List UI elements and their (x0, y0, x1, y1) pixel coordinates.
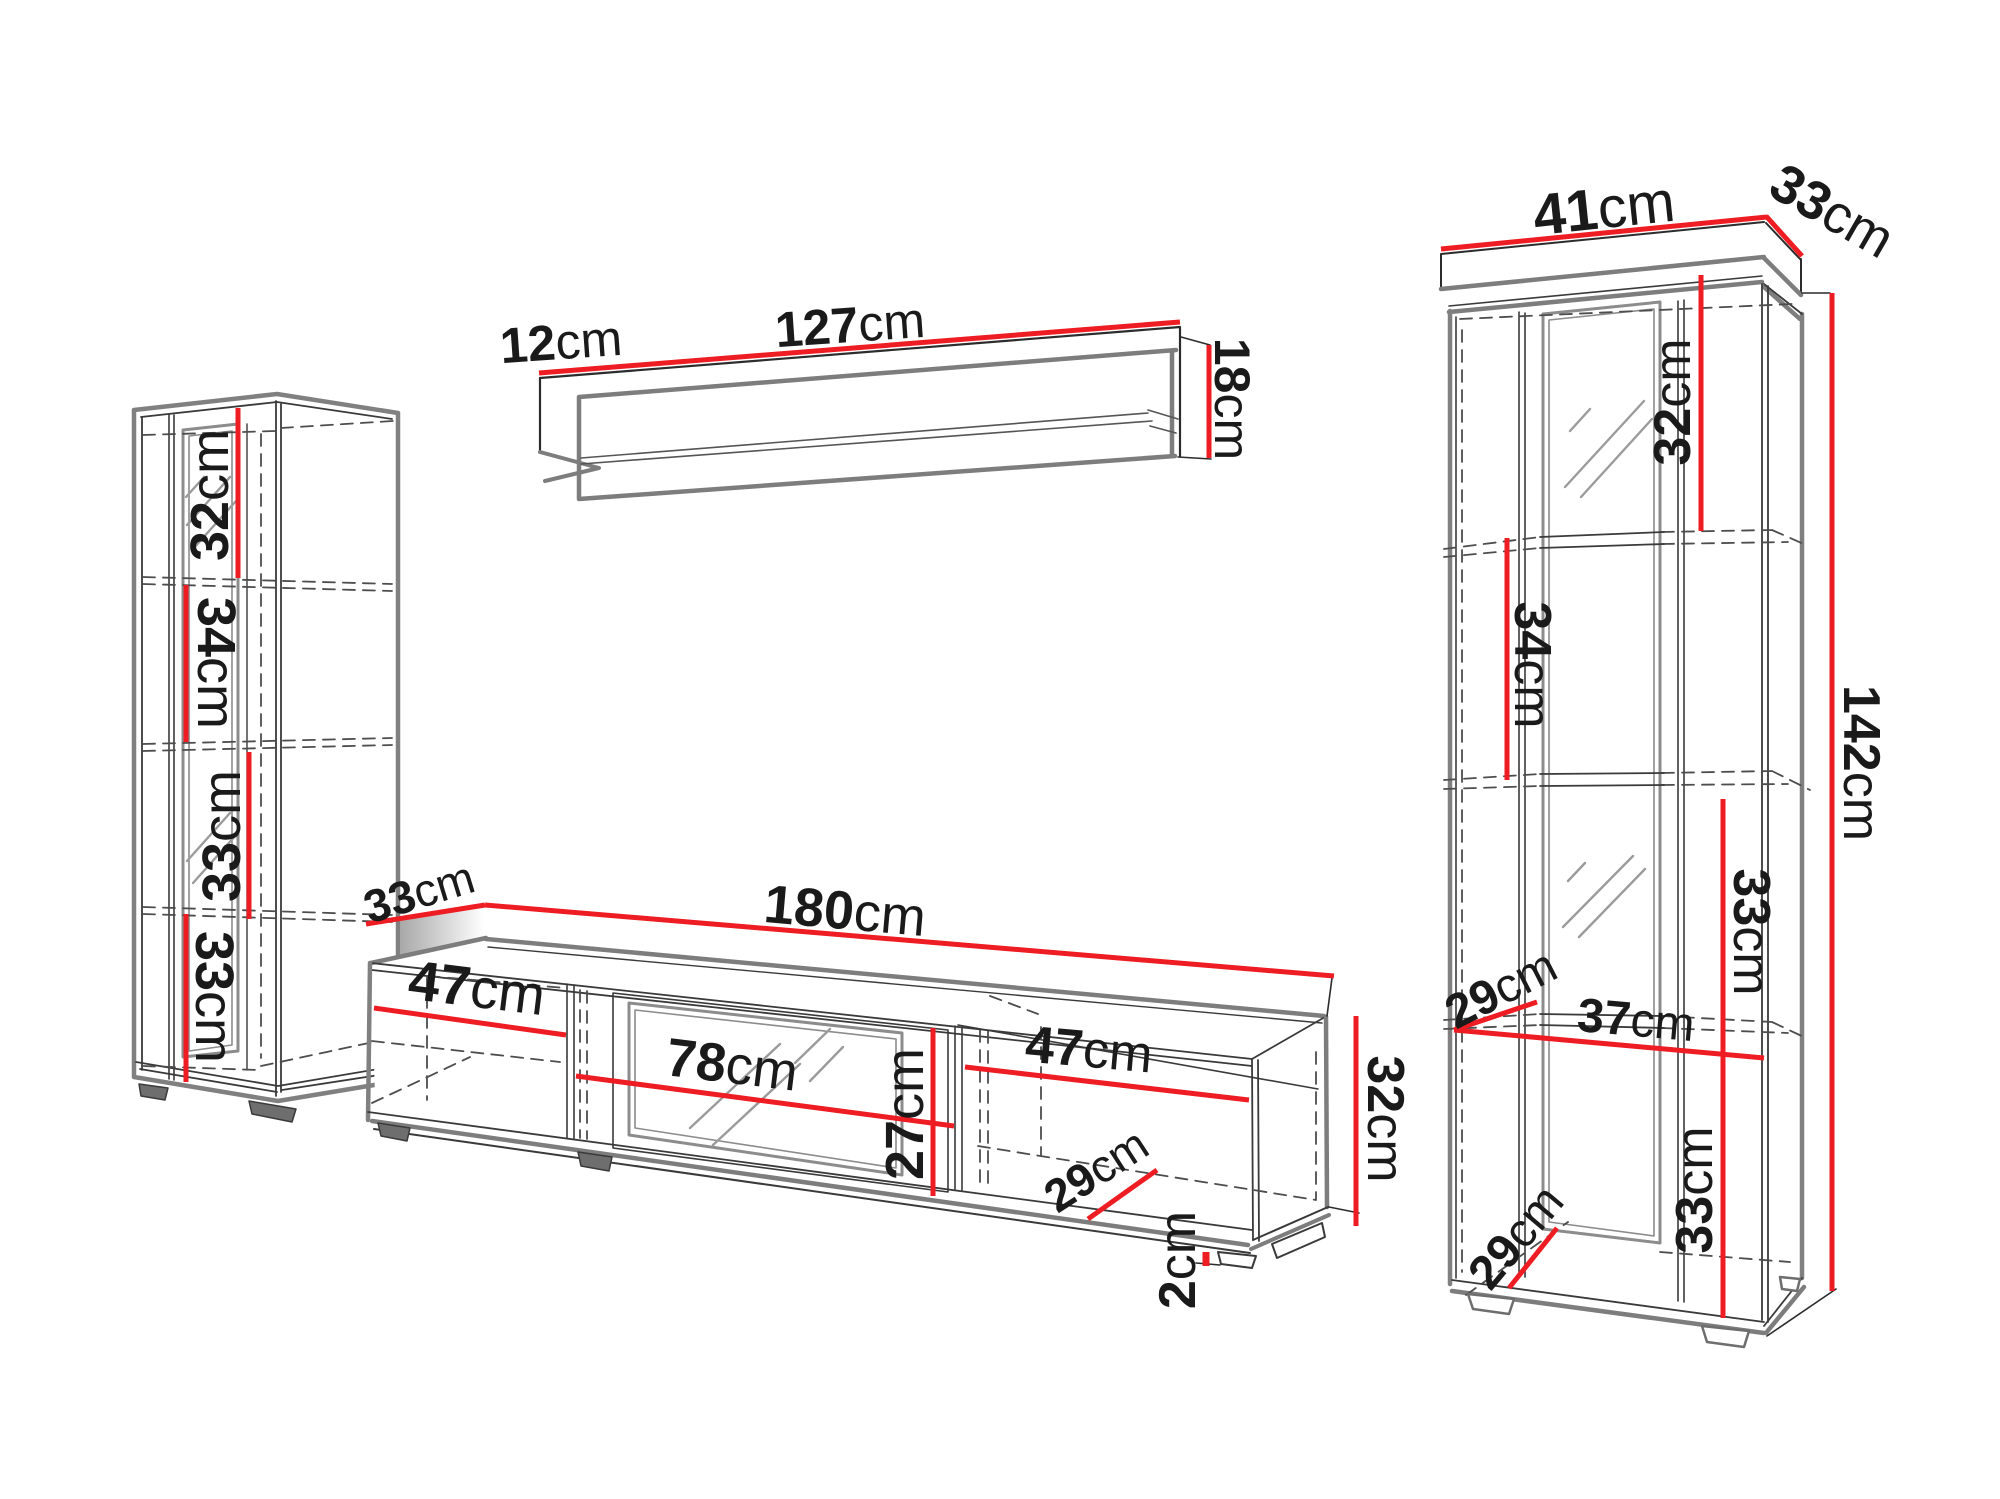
svg-text:12cm: 12cm (498, 310, 624, 374)
svg-text:33cm: 33cm (1666, 1126, 1724, 1253)
svg-text:142cm: 142cm (1832, 685, 1890, 841)
svg-text:34cm: 34cm (1503, 601, 1561, 728)
svg-text:32cm: 32cm (1356, 1055, 1414, 1182)
svg-text:33cm: 33cm (184, 931, 244, 1063)
svg-text:32cm: 32cm (1644, 338, 1702, 465)
svg-text:32cm: 32cm (180, 429, 240, 561)
svg-text:34cm: 34cm (186, 597, 246, 729)
svg-text:2cm: 2cm (1149, 1211, 1207, 1309)
svg-text:33cm: 33cm (192, 770, 252, 902)
svg-text:47cm: 47cm (1023, 1016, 1155, 1085)
svg-text:37cm: 37cm (1575, 988, 1697, 1051)
svg-text:33cm: 33cm (1722, 868, 1780, 995)
svg-text:127cm: 127cm (773, 292, 927, 358)
svg-text:27cm: 27cm (875, 1048, 935, 1180)
svg-text:18cm: 18cm (1204, 338, 1260, 460)
